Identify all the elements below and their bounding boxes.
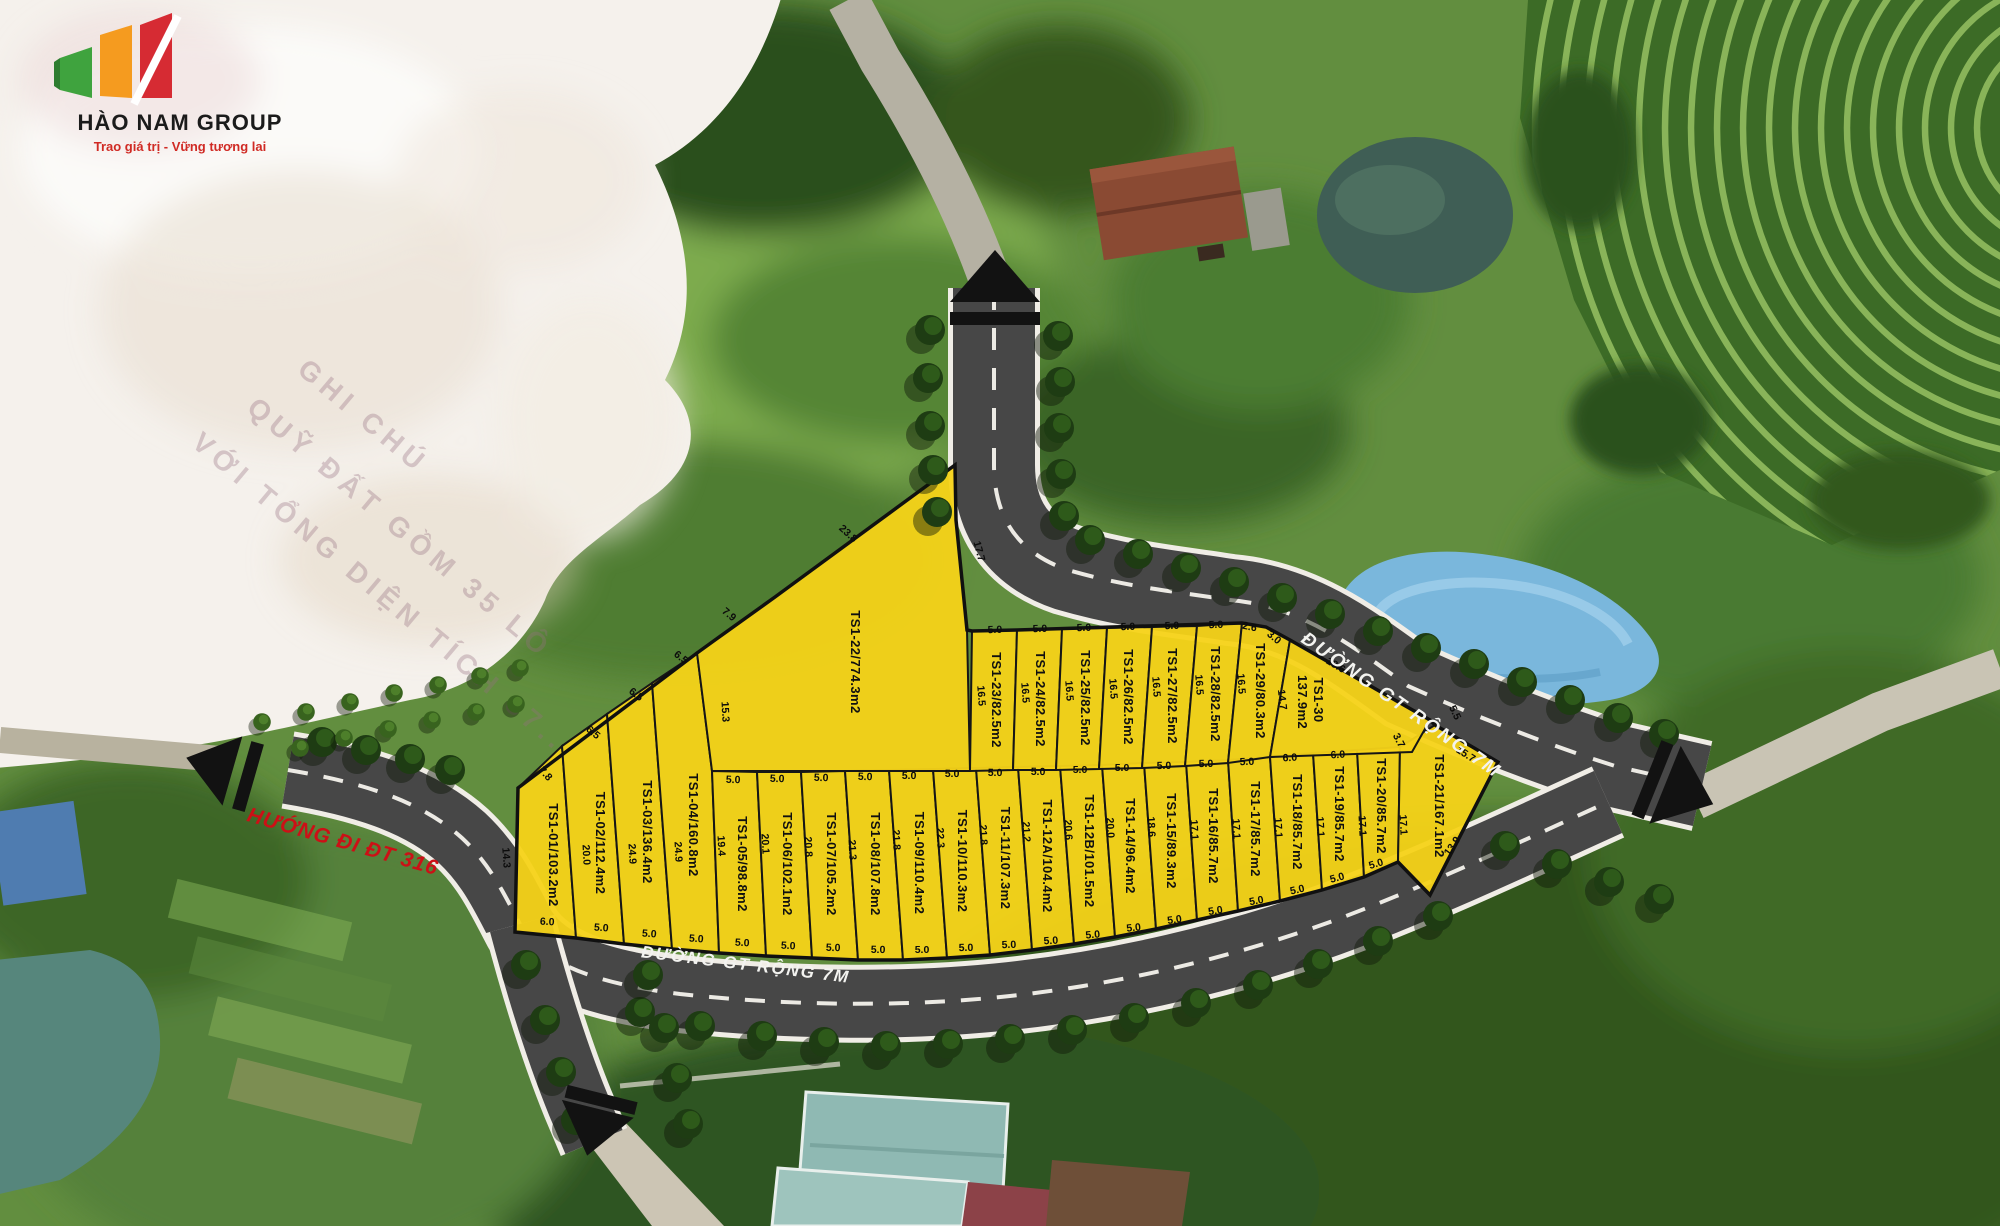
dimension-label: 5.0 bbox=[1157, 760, 1172, 772]
dimension-label: 5.0 bbox=[594, 922, 610, 935]
dimension-label: 5.0 bbox=[1001, 939, 1016, 952]
plot-TS1-16-label: TS1-16/85.7m2 bbox=[1206, 788, 1221, 884]
dimension-label: 5.0 bbox=[959, 942, 974, 954]
plot-TS1-10-label: TS1-10/110.3m2 bbox=[955, 810, 970, 912]
plot-TS1-27-label: TS1-27/82.5m2 bbox=[1165, 648, 1180, 744]
small-pond-highlight bbox=[1335, 165, 1445, 235]
dimension-label: 24.9 bbox=[625, 843, 638, 864]
dimension-label: 5.0 bbox=[735, 937, 750, 950]
dimension-label: 5.0 bbox=[1207, 904, 1223, 918]
dimension-label: 20.1 bbox=[758, 833, 771, 854]
dimension-label: 5.0 bbox=[987, 624, 1002, 637]
plot-TS1-21-label: TS1-21/167.1m2 bbox=[1432, 754, 1447, 857]
dimension-label: 5.0 bbox=[1031, 766, 1046, 778]
dimension-label: 14.3 bbox=[499, 847, 512, 868]
plot-TS1-06-label: TS1-06/102.1m2 bbox=[780, 812, 795, 915]
dimension-label: 17.1 bbox=[1187, 819, 1200, 840]
dimension-label: 16.5 bbox=[1106, 678, 1119, 699]
dimension-label: 5.0 bbox=[1199, 758, 1214, 770]
dimension-label: 20.8 bbox=[801, 836, 814, 857]
dimension-label: 21.3 bbox=[845, 839, 858, 860]
dimension-label: 6.0 bbox=[540, 916, 555, 929]
plot-TS1-08-label: TS1-08/107.8m2 bbox=[868, 812, 883, 915]
dimension-label: 5.0 bbox=[945, 768, 960, 780]
dimension-label: 5.0 bbox=[1208, 619, 1223, 632]
dimension-label: 5.0 bbox=[1115, 762, 1130, 774]
dimension-label: 17.1 bbox=[1229, 818, 1242, 839]
aerial-site-plan: GHI CHÚ QUỸ ĐẤT GỒM 35 LÔ VỚI TỔNG DIỆN … bbox=[0, 0, 2000, 1226]
dimension-label: 17.1 bbox=[1271, 817, 1284, 838]
dimension-label: 6.0 bbox=[1282, 752, 1297, 765]
dimension-label: 17.1 bbox=[1355, 815, 1368, 836]
dimension-label: 20.6 bbox=[1061, 819, 1074, 840]
plot-TS1-05-label: TS1-05/98.8m2 bbox=[735, 816, 750, 912]
plot-TS1-30-label: TS1-30 bbox=[1311, 677, 1326, 722]
plot-TS1-01-label: TS1-01/103.2m2 bbox=[546, 803, 561, 906]
plot-TS1-29-label: TS1-29/80.3m2 bbox=[1253, 643, 1268, 739]
dimension-label: 5.0 bbox=[1164, 620, 1179, 633]
plot-TS1-12A-label: TS1-12A/104.4m2 bbox=[1040, 800, 1055, 913]
dimension-label: 5.0 bbox=[902, 770, 917, 782]
plot-TS1-02-label: TS1-02/112.4m2 bbox=[593, 792, 608, 894]
dimension-label: 5.0 bbox=[770, 773, 785, 786]
dimension-label: 5.0 bbox=[689, 933, 705, 946]
blue-tarp bbox=[0, 801, 87, 906]
dimension-label: 18.6 bbox=[1144, 816, 1157, 837]
dimension-label: 14.7 bbox=[1275, 689, 1289, 711]
dimension-label: 5.0 bbox=[1120, 621, 1135, 634]
dimension-label: 5.0 bbox=[1076, 622, 1091, 635]
plot-TS1-28-label: TS1-28/82.5m2 bbox=[1208, 646, 1223, 742]
dimension-label: 5.0 bbox=[1043, 935, 1058, 948]
dimension-label: 24.9 bbox=[671, 841, 684, 862]
dimension-label: 5.0 bbox=[1126, 921, 1142, 934]
plot-TS1-11-label: TS1-11/107.3m2 bbox=[998, 807, 1013, 909]
plot-TS1-17-label: TS1-17/85.7m2 bbox=[1248, 781, 1263, 877]
dimension-label: 17.1 bbox=[1313, 816, 1326, 837]
logo-company-name: HÀO NAM GROUP bbox=[52, 110, 308, 136]
plot-TS1-24-label: TS1-24/82.5m2 bbox=[1033, 651, 1048, 747]
plot-TS1-26-label: TS1-26/82.5m2 bbox=[1121, 649, 1136, 745]
plot-TS1-20-label: TS1-20/85.7m2 bbox=[1374, 758, 1389, 854]
dimension-label: 20.0 bbox=[579, 844, 592, 865]
plot-TS1-23-label: TS1-23/82.5m2 bbox=[989, 652, 1004, 748]
dimension-label: 21.2 bbox=[1019, 821, 1032, 842]
dimension-label: 16.5 bbox=[1234, 673, 1247, 694]
dimension-label: 16.5 bbox=[1062, 680, 1075, 701]
plot-TS1-22-label: TS1-22/774.3m2 bbox=[848, 610, 863, 713]
dimension-label: 22.3 bbox=[933, 827, 946, 848]
dimension-label: 16.5 bbox=[974, 685, 987, 706]
plot-TS1-30-area-label: 137.9m2 bbox=[1295, 675, 1310, 729]
plot-TS1-03-label: TS1-03/136.4m2 bbox=[640, 780, 655, 883]
dimension-label: 16.5 bbox=[1018, 682, 1031, 703]
plot-TS1-18-label: TS1-18/85.7m2 bbox=[1290, 774, 1305, 870]
dimension-label: 6.0 bbox=[1330, 749, 1345, 762]
company-logo: HÀO NAM GROUP Trao giá trị - Vững tương … bbox=[52, 12, 308, 154]
dimension-label: 5.0 bbox=[826, 942, 841, 955]
logo-tagline: Trao giá trị - Vững tương lai bbox=[52, 139, 308, 154]
dimension-label: 19.4 bbox=[714, 835, 727, 856]
dimension-label: 5.0 bbox=[1073, 764, 1088, 776]
plot-TS1-15-label: TS1-15/89.3m2 bbox=[1164, 793, 1179, 889]
dimension-label: 5.0 bbox=[726, 774, 741, 787]
dimension-label: 5.0 bbox=[814, 772, 829, 785]
plot-TS1-14-label: TS1-14/96.4m2 bbox=[1123, 798, 1138, 894]
site-plan-canvas: GHI CHÚ QUỸ ĐẤT GỒM 35 LÔ VỚI TỔNG DIỆN … bbox=[0, 0, 2000, 1226]
dimension-label: 5.0 bbox=[915, 944, 930, 956]
plot-TS1-25-label: TS1-25/82.5m2 bbox=[1078, 650, 1093, 746]
dimension-label: 20.0 bbox=[1103, 817, 1116, 838]
dimension-label: 21.8 bbox=[976, 824, 989, 845]
dimension-label: 5.0 bbox=[858, 771, 873, 784]
plot-TS1-04-label: TS1-04/160.8m2 bbox=[686, 773, 701, 876]
dimension-label: 5.0 bbox=[988, 767, 1003, 779]
dimension-label: 5.0 bbox=[642, 928, 658, 941]
dimension-label: 5.0 bbox=[1239, 756, 1254, 769]
plot-TS1-07-label: TS1-07/105.2m2 bbox=[824, 812, 839, 915]
logo-chart-icon bbox=[52, 12, 202, 108]
dimension-label: 5.0 bbox=[1032, 623, 1047, 636]
dimension-label: 16.5 bbox=[1192, 674, 1205, 695]
dimension-label: 17.1 bbox=[1396, 814, 1409, 835]
dimension-label: 5.0 bbox=[1085, 928, 1101, 941]
dimension-label: 21.8 bbox=[889, 829, 902, 850]
plot-TS1-19-label: TS1-19/85.7m2 bbox=[1332, 766, 1347, 862]
dimension-label: 5.0 bbox=[1167, 913, 1183, 927]
dimension-label: 15.3 bbox=[718, 701, 731, 722]
plot-TS1-12B-label: TS1-12B/101.5m2 bbox=[1082, 795, 1097, 908]
plot-TS1-09-label: TS1-09/110.4m2 bbox=[912, 812, 927, 914]
dimension-label: 16.5 bbox=[1149, 676, 1162, 697]
dimension-label: 5.0 bbox=[781, 940, 796, 953]
dimension-label: 5.0 bbox=[871, 944, 886, 956]
